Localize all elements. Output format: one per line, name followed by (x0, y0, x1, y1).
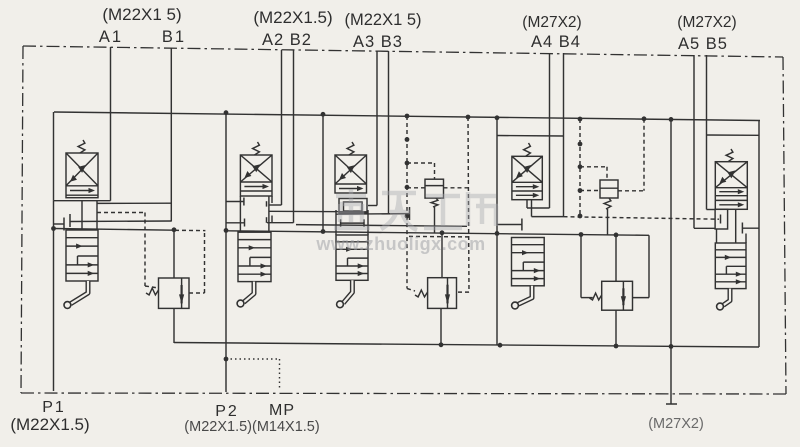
svg-text:(M22X1 5): (M22X1 5) (344, 11, 421, 29)
svg-text:P1: P1 (42, 399, 66, 416)
svg-text:(M27X2): (M27X2) (648, 416, 704, 432)
svg-text:www.zhuoligx.com: www.zhuoligx.com (315, 234, 485, 254)
svg-text:(M27X2): (M27X2) (677, 14, 736, 31)
svg-text:(M22X1.5)(M14X1.5): (M22X1.5)(M14X1.5) (184, 419, 319, 435)
svg-text:B1: B1 (162, 28, 186, 46)
svg-text:(M22X1 5): (M22X1 5) (102, 5, 181, 24)
svg-text:A2 B2: A2 B2 (262, 31, 312, 49)
svg-text:MP: MP (269, 402, 295, 419)
svg-text:(M22X1.5): (M22X1.5) (253, 8, 332, 27)
svg-text:A1: A1 (99, 28, 123, 46)
svg-text:A4 B4: A4 B4 (531, 33, 581, 51)
svg-text:A3 B3: A3 B3 (353, 33, 403, 51)
svg-text:(M22X1.5): (M22X1.5) (10, 415, 89, 434)
svg-text:A5 B5: A5 B5 (678, 35, 728, 53)
svg-text:(M27X2): (M27X2) (522, 14, 581, 31)
svg-text:P2: P2 (215, 403, 239, 420)
